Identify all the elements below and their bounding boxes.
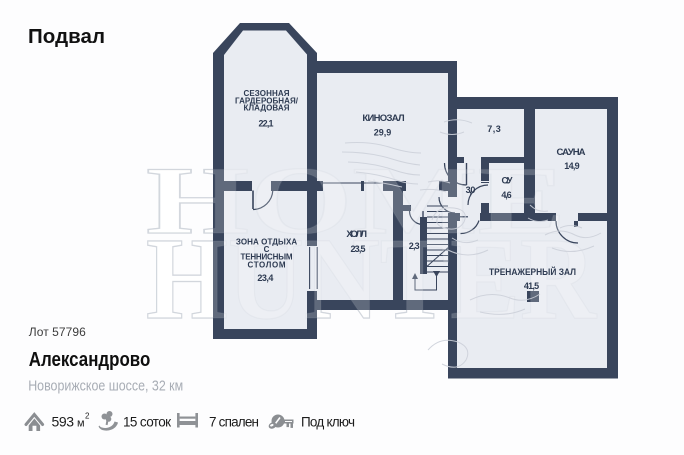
svg-text:15 соток: 15 соток <box>123 415 171 430</box>
svg-text:2,3: 2,3 <box>409 241 420 251</box>
svg-text:ХОЛЛ: ХОЛЛ <box>346 229 367 240</box>
svg-text:41,5: 41,5 <box>524 281 539 291</box>
svg-text:22,1: 22,1 <box>259 118 274 128</box>
svg-text:593: 593 <box>52 414 75 430</box>
svg-text:2: 2 <box>85 412 90 421</box>
svg-text:С/У: С/У <box>502 176 513 186</box>
svg-text:23,5: 23,5 <box>351 244 366 254</box>
svg-text:ТРЕНАЖЕРНЫЙ ЗАЛ: ТРЕНАЖЕРНЫЙ ЗАЛ <box>489 266 576 277</box>
svg-text:Лот 57796: Лот 57796 <box>29 325 86 339</box>
svg-text:Александрово: Александрово <box>29 348 151 371</box>
svg-text:29,9: 29,9 <box>374 128 392 138</box>
svg-text:3,0: 3,0 <box>466 185 476 195</box>
svg-text:КЛАДОВАЯ: КЛАДОВАЯ <box>244 104 290 113</box>
svg-text:14,9: 14,9 <box>564 161 579 171</box>
svg-text:СТОЛОМ: СТОЛОМ <box>248 260 286 269</box>
svg-text:Новорижское шоссе, 32 км: Новорижское шоссе, 32 км <box>28 379 183 395</box>
svg-text:м: м <box>77 418 85 430</box>
svg-text:4,6: 4,6 <box>501 190 511 200</box>
svg-text:Подвал: Подвал <box>28 25 105 48</box>
svg-text:КИНОЗАЛ: КИНОЗАЛ <box>362 113 405 124</box>
svg-text:Под ключ: Под ключ <box>301 415 355 430</box>
svg-text:7 спален: 7 спален <box>209 415 259 430</box>
svg-text:7,3: 7,3 <box>487 124 501 134</box>
svg-text:23,4: 23,4 <box>257 273 273 283</box>
svg-text:САУНА: САУНА <box>557 147 586 158</box>
